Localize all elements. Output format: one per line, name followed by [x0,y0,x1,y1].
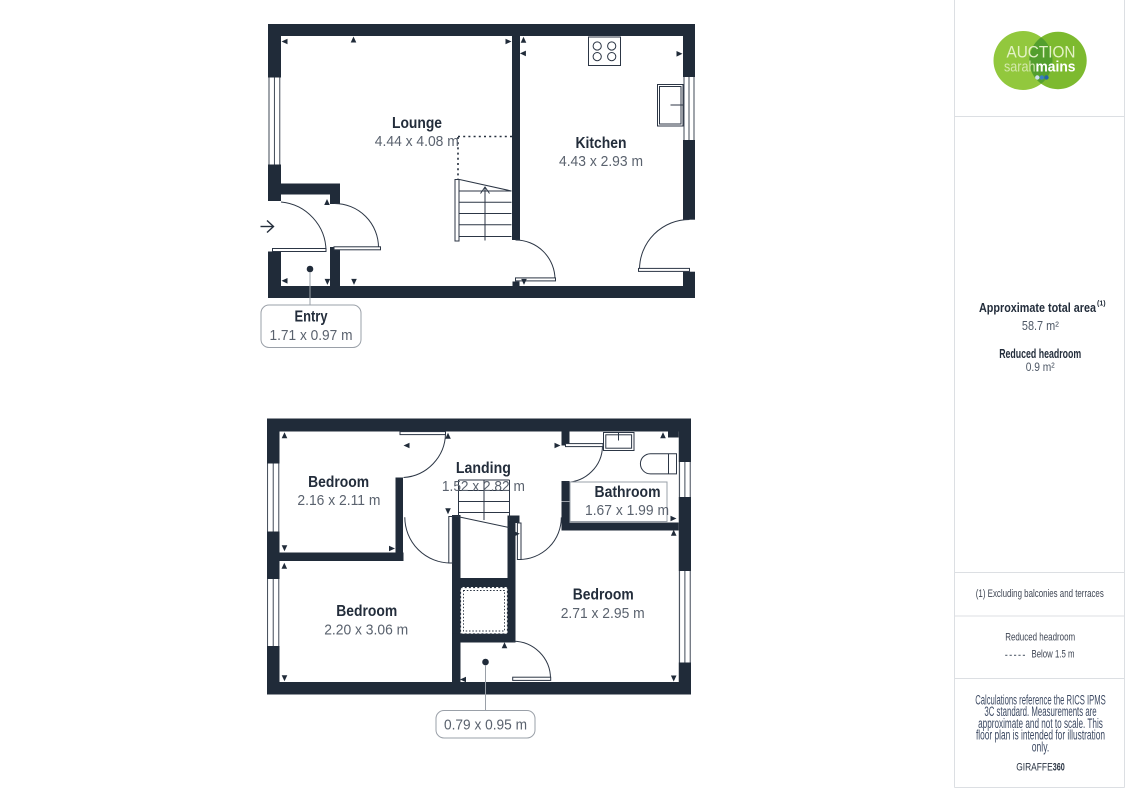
svg-text:Bedroom: Bedroom [573,586,634,603]
svg-text:0.79 x 0.95 m: 0.79 x 0.95 m [444,717,527,734]
svg-text:Entry: Entry [295,309,328,326]
svg-text:4.44 x 4.08 m: 4.44 x 4.08 m [375,133,459,150]
svg-text:Reduced headroom: Reduced headroom [1005,632,1075,644]
svg-text:2.16 x 2.11 m: 2.16 x 2.11 m [297,492,380,509]
svg-text:Kitchen: Kitchen [576,135,627,152]
svg-text:Bedroom: Bedroom [336,603,397,620]
svg-text:Landing: Landing [456,460,511,477]
svg-text:2.71 x 2.95 m: 2.71 x 2.95 m [561,605,645,622]
svg-text:(1): (1) [1097,301,1106,308]
svg-text:Approximate total area: Approximate total area [979,300,1097,315]
svg-text:Bedroom: Bedroom [308,474,369,491]
svg-text:1.67 x 1.99 m: 1.67 x 1.99 m [585,502,669,519]
svg-text:Bathroom: Bathroom [595,484,661,501]
svg-text:58.7 m²: 58.7 m² [1022,319,1059,333]
svg-text:Lounge: Lounge [392,115,442,132]
svg-text:only.: only. [1032,739,1050,754]
svg-text:Below 1.5 m: Below 1.5 m [1032,648,1075,660]
svg-text:1.52 x 2.82 m: 1.52 x 2.82 m [442,478,525,495]
svg-text:(1) Excluding balconies and te: (1) Excluding balconies and terraces [976,588,1104,600]
svg-text:2.20 x 3.06 m: 2.20 x 3.06 m [324,622,408,639]
svg-text:Reduced headroom: Reduced headroom [999,347,1081,361]
svg-text:4.43 x 2.93 m: 4.43 x 2.93 m [559,153,643,170]
svg-text:GIRAFFE: GIRAFFE [1016,762,1052,774]
svg-text:sarah: sarah [1004,58,1036,75]
svg-text:0.9 m²: 0.9 m² [1026,360,1055,374]
svg-text:mains: mains [1036,58,1076,75]
svg-text:1.71 x 0.97 m: 1.71 x 0.97 m [270,327,353,344]
svg-text:360: 360 [1053,762,1065,774]
